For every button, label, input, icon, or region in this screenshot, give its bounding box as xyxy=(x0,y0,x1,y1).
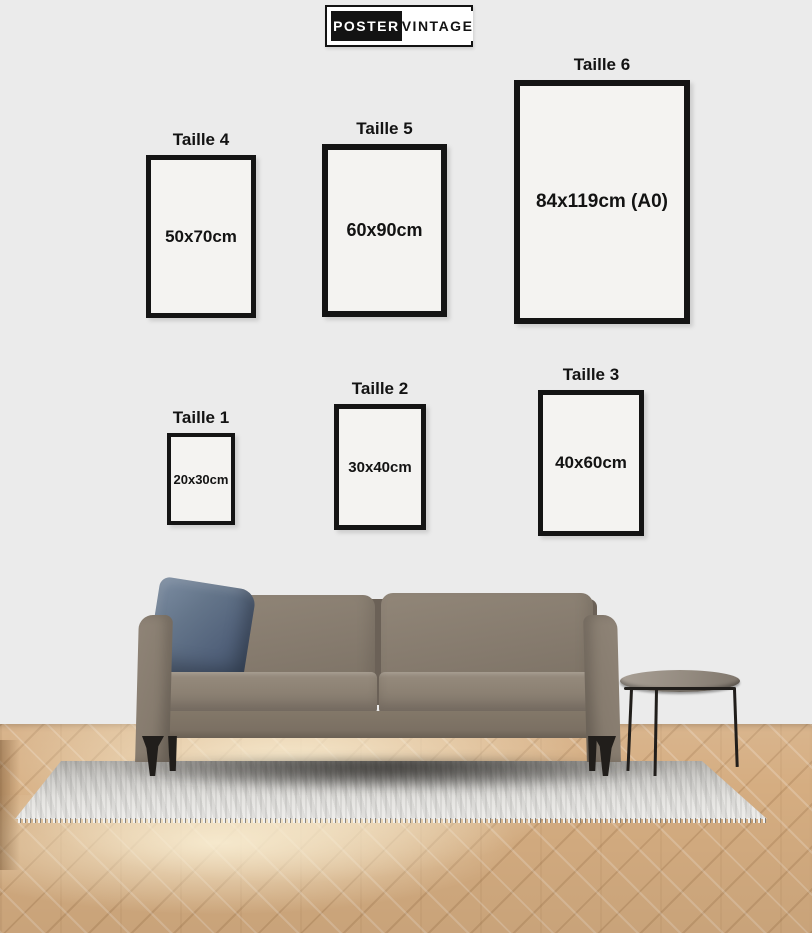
size-frame-taille-4: Taille 4 50x70cm xyxy=(146,155,256,318)
size-frame-taille-6: Taille 6 84x119cm (A0) xyxy=(514,80,690,324)
rug-fringe xyxy=(18,818,768,823)
size-label: Taille 6 xyxy=(574,55,630,75)
poster-frame: 84x119cm (A0) xyxy=(514,80,690,324)
size-frame-taille-3: Taille 3 40x60cm xyxy=(538,390,644,536)
size-frame-taille-5: Taille 5 60x90cm xyxy=(322,144,447,317)
size-dimensions: 84x119cm (A0) xyxy=(536,191,668,213)
sofa-base xyxy=(141,711,616,738)
poster-frame: 40x60cm xyxy=(538,390,644,536)
sofa xyxy=(135,593,622,778)
size-dimensions: 60x90cm xyxy=(346,220,422,241)
sofa-seat-cushion-left xyxy=(148,672,377,713)
size-dimensions: 50x70cm xyxy=(165,227,237,247)
poster-frame: 60x90cm xyxy=(322,144,447,317)
size-dimensions: 40x60cm xyxy=(555,453,627,473)
size-frame-taille-2: Taille 2 30x40cm xyxy=(334,404,426,530)
size-label: Taille 5 xyxy=(356,119,412,139)
size-label: Taille 3 xyxy=(563,365,619,385)
floor-shadow-edge xyxy=(0,740,20,870)
size-label: Taille 4 xyxy=(173,130,229,150)
side-table-leg xyxy=(626,689,633,771)
side-table-rim xyxy=(624,687,736,690)
size-dimensions: 20x30cm xyxy=(174,472,229,487)
side-table-leg xyxy=(653,690,658,776)
sofa-seat-cushion-right xyxy=(379,672,608,713)
brand-logo: POSTER VINTAGE xyxy=(325,5,473,47)
size-guide-image: { "brand": { "name_left": "POSTER", "nam… xyxy=(0,0,812,933)
size-label: Taille 1 xyxy=(173,408,229,428)
poster-frame: 20x30cm xyxy=(167,433,235,525)
size-label: Taille 2 xyxy=(352,379,408,399)
side-table xyxy=(618,668,742,772)
brand-logo-poster: POSTER xyxy=(331,11,402,41)
side-table-leg xyxy=(733,689,739,767)
brand-logo-vintage: VINTAGE xyxy=(402,11,474,41)
poster-frame: 50x70cm xyxy=(146,155,256,318)
poster-frame: 30x40cm xyxy=(334,404,426,530)
size-dimensions: 30x40cm xyxy=(348,459,411,476)
size-frame-taille-1: Taille 1 20x30cm xyxy=(167,433,235,525)
